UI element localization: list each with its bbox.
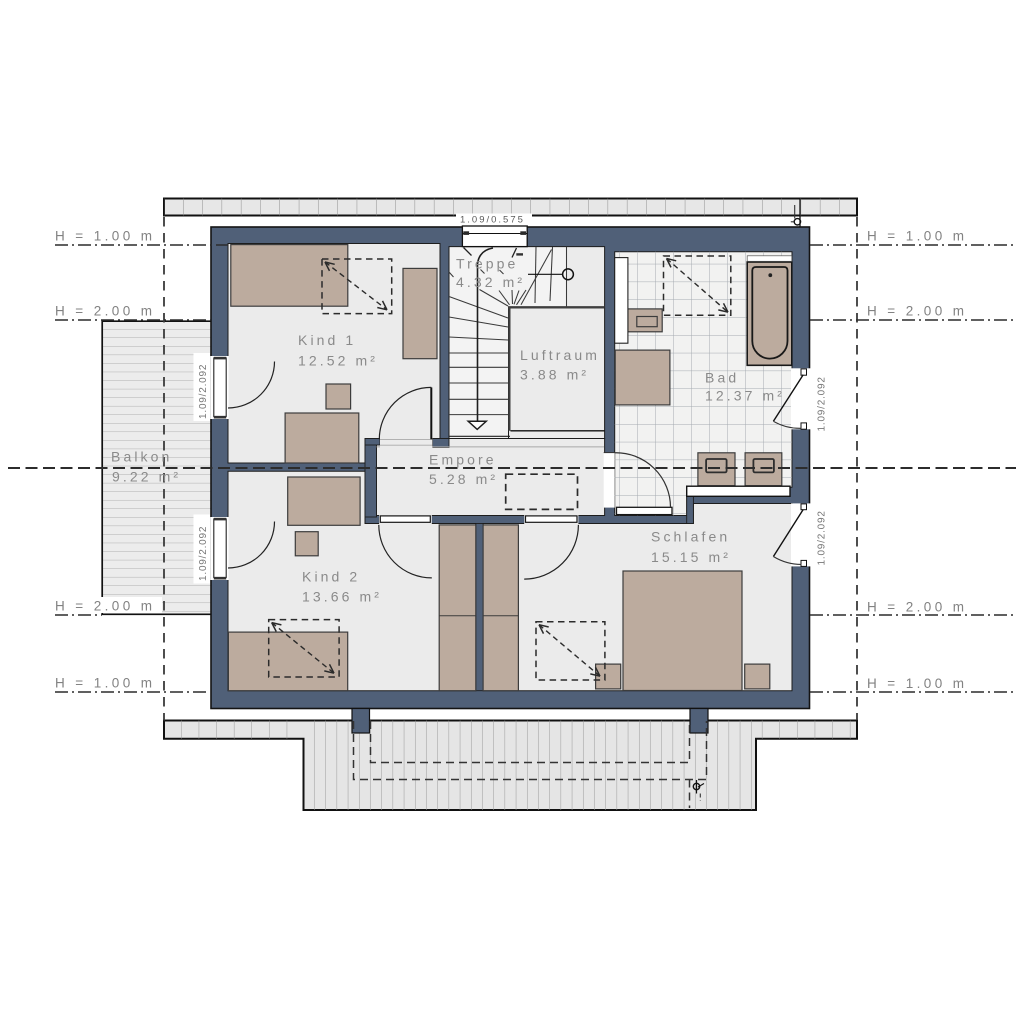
- svg-text:5.28 m²: 5.28 m²: [429, 471, 498, 487]
- svg-text:1.09/2.092: 1.09/2.092: [817, 376, 828, 431]
- svg-text:13.66 m²: 13.66 m²: [302, 589, 382, 605]
- svg-text:Empore: Empore: [429, 452, 497, 468]
- svg-text:H = 1.00 m: H = 1.00 m: [867, 229, 967, 244]
- svg-text:Balkon: Balkon: [111, 449, 172, 465]
- svg-text:12.37 m²: 12.37 m²: [705, 388, 785, 404]
- svg-text:9.22 m²: 9.22 m²: [112, 469, 181, 485]
- svg-text:4.32 m²: 4.32 m²: [456, 274, 525, 290]
- svg-text:1.09/0.575: 1.09/0.575: [460, 215, 525, 226]
- svg-text:Treppe: Treppe: [456, 255, 518, 271]
- svg-text:H = 2.00 m: H = 2.00 m: [867, 600, 967, 615]
- svg-text:H = 1.00 m: H = 1.00 m: [55, 676, 155, 691]
- svg-text:1.09/2.092: 1.09/2.092: [198, 526, 209, 581]
- svg-text:12.52 m²: 12.52 m²: [298, 353, 378, 369]
- svg-text:Kind 2: Kind 2: [302, 569, 360, 585]
- svg-text:H = 1.00 m: H = 1.00 m: [867, 676, 967, 691]
- svg-text:15.15 m²: 15.15 m²: [651, 549, 731, 565]
- svg-text:H = 2.00 m: H = 2.00 m: [867, 304, 967, 319]
- svg-text:1.09/2.092: 1.09/2.092: [198, 364, 209, 419]
- svg-text:H = 2.00 m: H = 2.00 m: [55, 304, 155, 319]
- svg-text:1.09/2.092: 1.09/2.092: [817, 510, 828, 565]
- svg-text:H = 2.00 m: H = 2.00 m: [55, 599, 155, 614]
- svg-text:Bad: Bad: [705, 370, 739, 386]
- svg-text:Luftraum: Luftraum: [520, 347, 600, 363]
- svg-text:3.88 m²: 3.88 m²: [520, 367, 589, 383]
- svg-text:Schlafen: Schlafen: [651, 529, 730, 545]
- svg-text:H = 1.00 m: H = 1.00 m: [55, 229, 155, 244]
- svg-text:Kind 1: Kind 1: [298, 332, 356, 348]
